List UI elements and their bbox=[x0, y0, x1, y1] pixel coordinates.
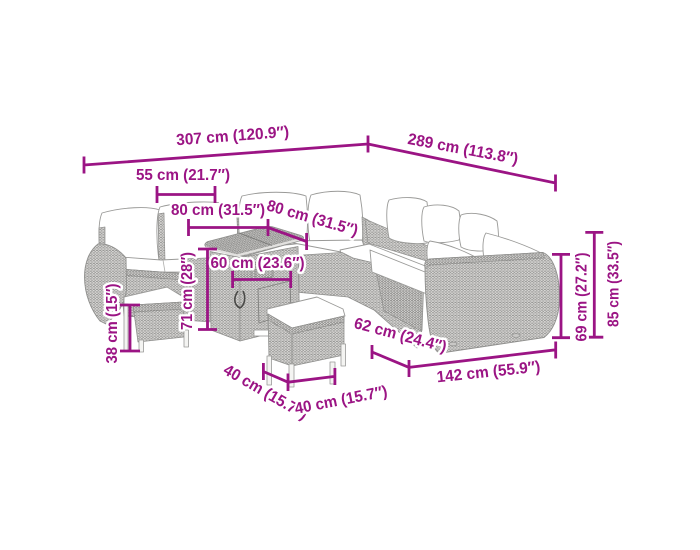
svg-text:71 cm (28″): 71 cm (28″) bbox=[179, 252, 196, 330]
svg-text:38 cm (15″): 38 cm (15″) bbox=[104, 284, 121, 364]
svg-text:85 cm (33.5″): 85 cm (33.5″) bbox=[606, 241, 623, 327]
svg-text:80 cm (31.5″): 80 cm (31.5″) bbox=[171, 202, 265, 219]
svg-text:69 cm (27.2″): 69 cm (27.2″) bbox=[574, 253, 591, 342]
svg-text:55 cm (21.7″): 55 cm (21.7″) bbox=[136, 167, 230, 184]
svg-text:60 cm (23.6″): 60 cm (23.6″) bbox=[211, 255, 305, 272]
